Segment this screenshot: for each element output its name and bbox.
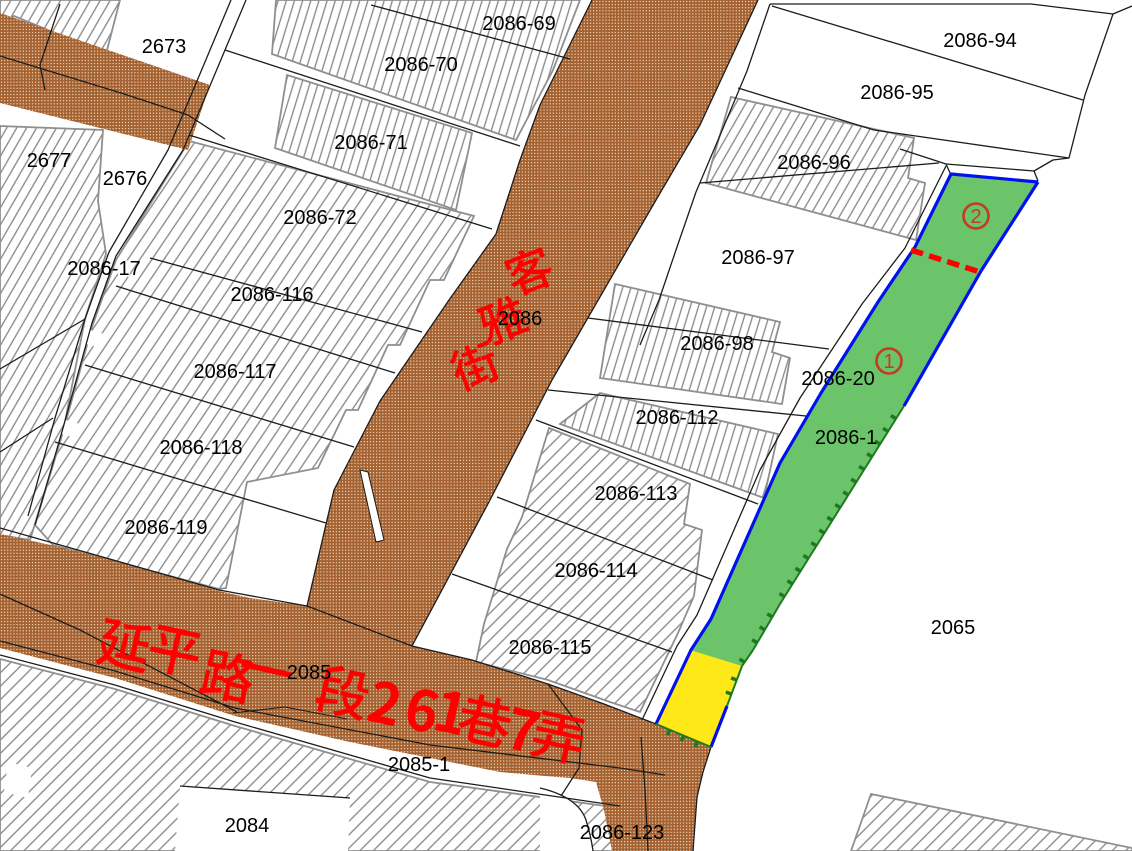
- svg-text:2676: 2676: [103, 168, 148, 190]
- svg-text:2084: 2084: [225, 815, 270, 837]
- svg-text:2086-94: 2086-94: [943, 30, 1016, 52]
- svg-text:2086-70: 2086-70: [384, 54, 457, 76]
- svg-text:2086-95: 2086-95: [860, 82, 933, 104]
- svg-text:2086-113: 2086-113: [594, 483, 677, 505]
- svg-text:2677: 2677: [27, 150, 72, 172]
- svg-text:2086-112: 2086-112: [635, 407, 718, 429]
- svg-text:2: 2: [970, 206, 981, 228]
- svg-text:2086-17: 2086-17: [67, 258, 140, 280]
- svg-text:2086-97: 2086-97: [721, 247, 794, 269]
- svg-text:2086-119: 2086-119: [124, 517, 207, 539]
- svg-text:2086-123: 2086-123: [580, 822, 665, 844]
- svg-text:2086-114: 2086-114: [554, 560, 637, 582]
- svg-text:2086-20: 2086-20: [801, 368, 874, 390]
- svg-text:2085-1: 2085-1: [388, 754, 450, 776]
- svg-text:2085: 2085: [287, 662, 332, 684]
- svg-text:2086-72: 2086-72: [283, 207, 356, 229]
- svg-text:1: 1: [883, 351, 894, 373]
- svg-text:2086-96: 2086-96: [777, 152, 850, 174]
- svg-text:2086-69: 2086-69: [482, 13, 555, 35]
- svg-text:2086-1: 2086-1: [815, 427, 877, 449]
- svg-text:2086-98: 2086-98: [680, 333, 753, 355]
- svg-text:2086-115: 2086-115: [508, 637, 591, 659]
- svg-text:2086-71: 2086-71: [334, 132, 407, 154]
- svg-text:2065: 2065: [931, 617, 976, 639]
- svg-text:2086-116: 2086-116: [230, 284, 313, 306]
- svg-text:2086-117: 2086-117: [193, 361, 276, 383]
- svg-text:2086-118: 2086-118: [159, 437, 242, 459]
- svg-text:2673: 2673: [142, 36, 187, 58]
- svg-text:2086: 2086: [498, 308, 543, 330]
